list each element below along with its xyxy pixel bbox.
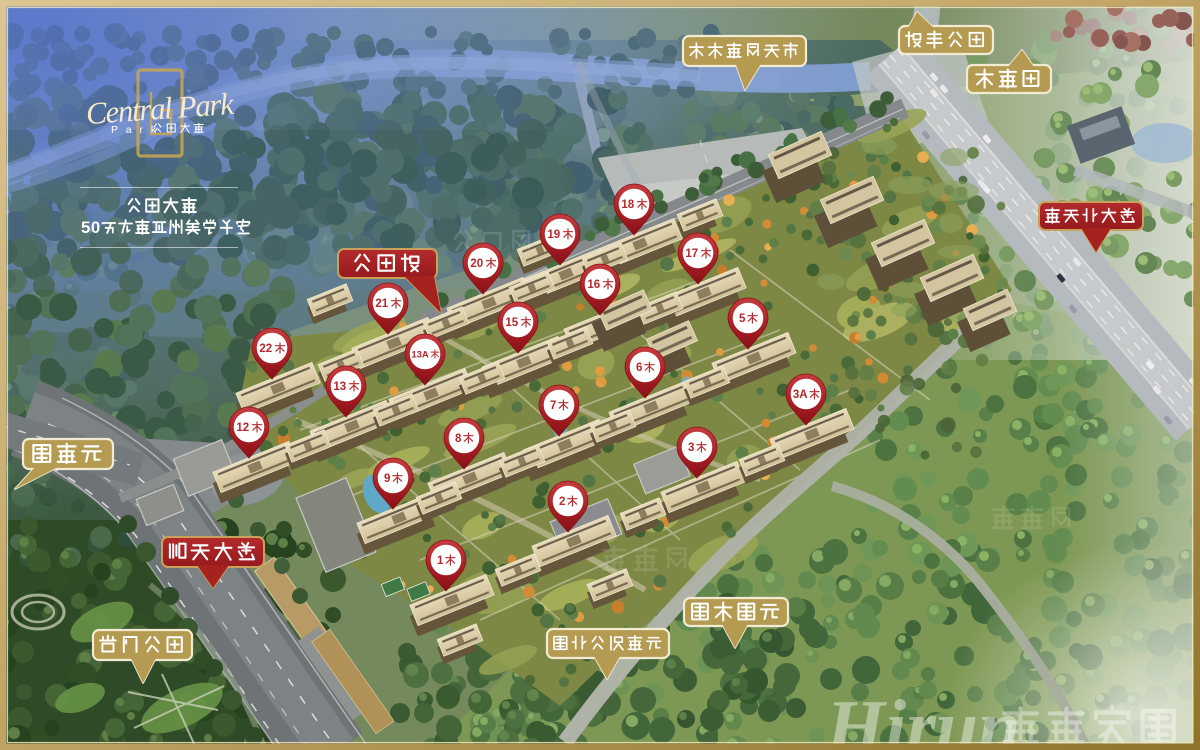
- svg-text:20: 20: [470, 258, 483, 270]
- svg-text:8: 8: [455, 433, 462, 445]
- svg-text:9: 9: [384, 473, 390, 485]
- svg-text:P a r k: P a r k: [111, 124, 159, 136]
- svg-text:17: 17: [685, 248, 698, 260]
- svg-text:12: 12: [236, 422, 249, 434]
- svg-text:1: 1: [437, 555, 444, 567]
- svg-text:3: 3: [688, 442, 694, 454]
- svg-text:16: 16: [587, 279, 600, 291]
- svg-text:Hirun: Hirun: [825, 685, 1020, 750]
- svg-text:21: 21: [375, 298, 388, 310]
- svg-text:19: 19: [547, 229, 560, 241]
- svg-text:22: 22: [259, 343, 272, 355]
- svg-text:13: 13: [333, 381, 346, 393]
- svg-text:3A: 3A: [793, 389, 808, 401]
- svg-text:5: 5: [739, 313, 746, 325]
- svg-text:7: 7: [550, 400, 556, 412]
- svg-text:2: 2: [559, 496, 565, 508]
- svg-text:6: 6: [636, 362, 642, 374]
- svg-text:0: 0: [91, 218, 100, 237]
- svg-text:13A: 13A: [411, 349, 429, 360]
- svg-text:15: 15: [505, 317, 518, 329]
- svg-text:5: 5: [81, 218, 90, 237]
- svg-text:18: 18: [621, 199, 634, 211]
